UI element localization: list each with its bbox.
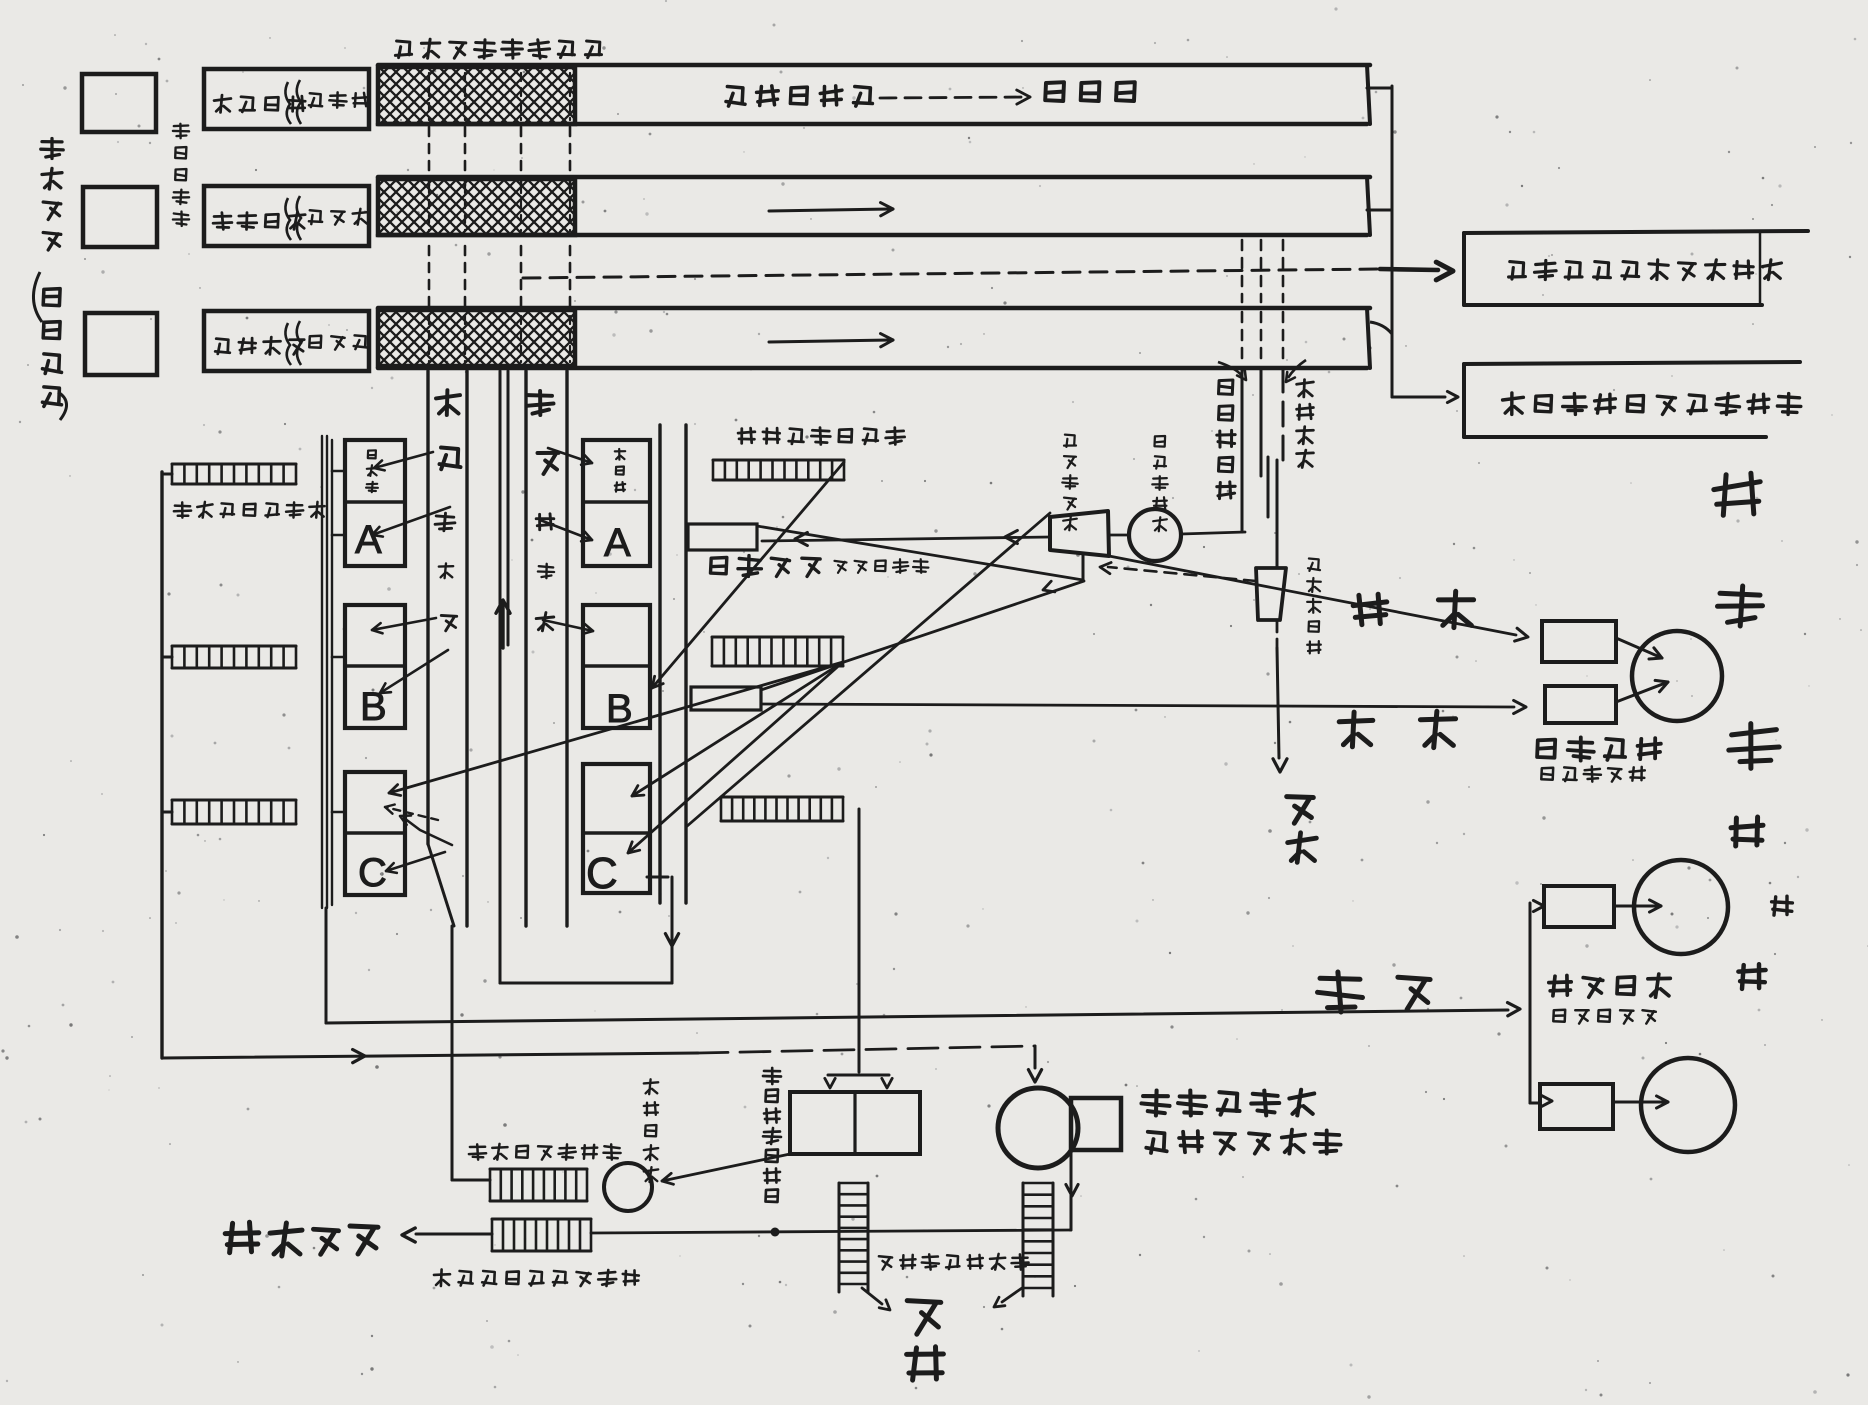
svg-text:C: C	[586, 849, 618, 898]
svg-text:A: A	[604, 521, 631, 565]
svg-text:A: A	[355, 518, 382, 562]
svg-text:C: C	[358, 851, 387, 895]
